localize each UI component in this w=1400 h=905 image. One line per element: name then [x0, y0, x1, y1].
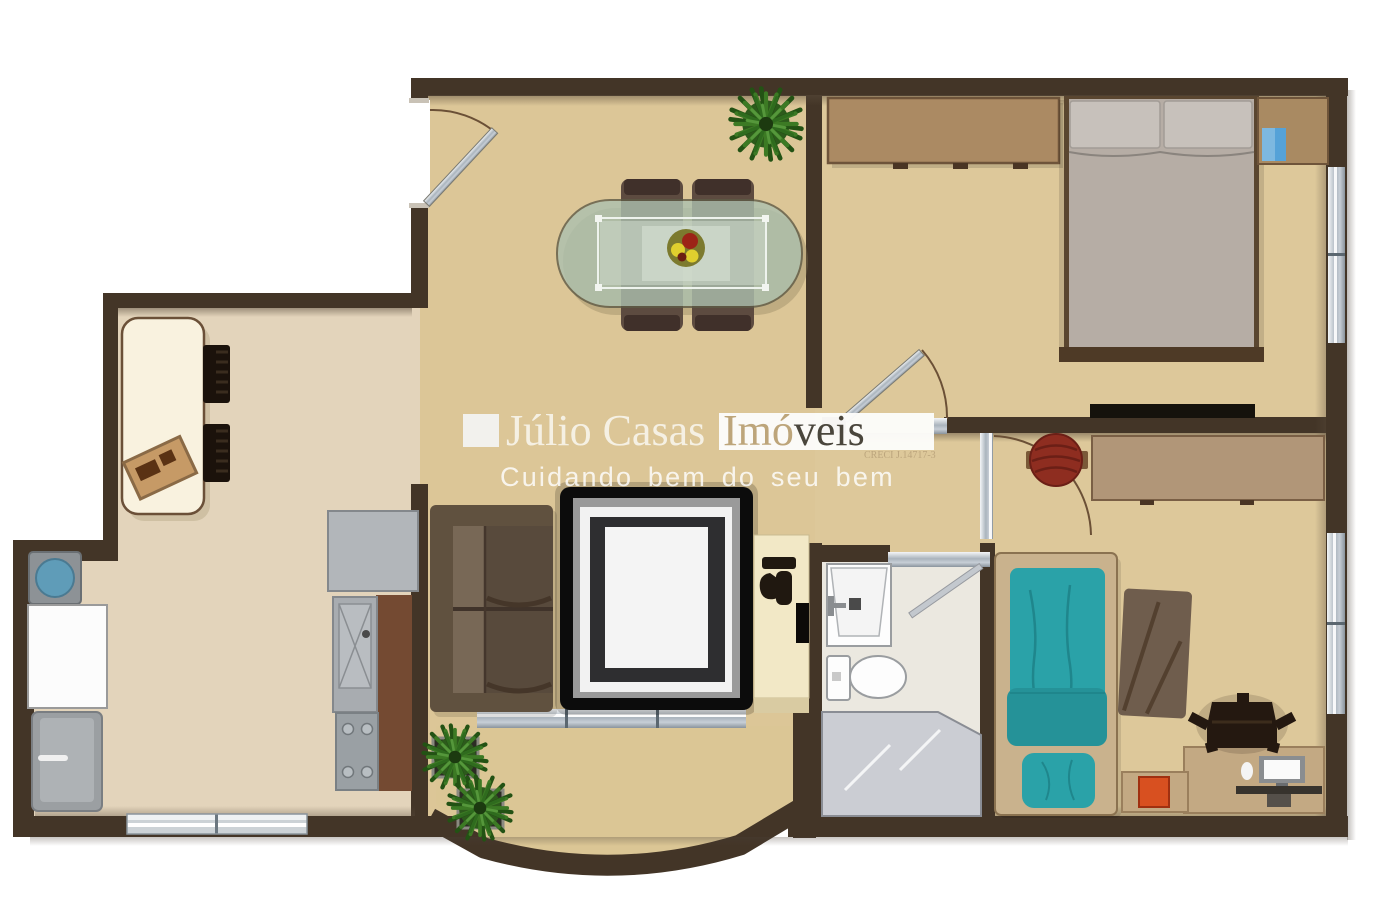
- svg-text:Júlio Casas: Júlio Casas: [506, 406, 705, 455]
- svg-text:CRECI J.14717-3: CRECI J.14717-3: [864, 450, 936, 461]
- svg-text:Imóveis: Imóveis: [723, 406, 865, 455]
- svg-text:Cuidando bem do seu bem: Cuidando bem do seu bem: [500, 462, 895, 492]
